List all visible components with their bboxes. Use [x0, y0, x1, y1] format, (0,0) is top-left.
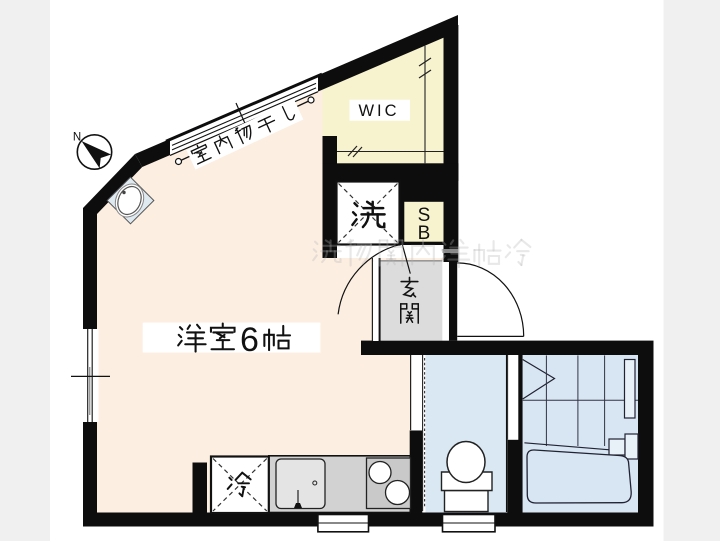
- svg-text:6: 6: [240, 321, 259, 359]
- svg-text:N: N: [73, 132, 81, 144]
- svg-text:WIC: WIC: [358, 102, 399, 120]
